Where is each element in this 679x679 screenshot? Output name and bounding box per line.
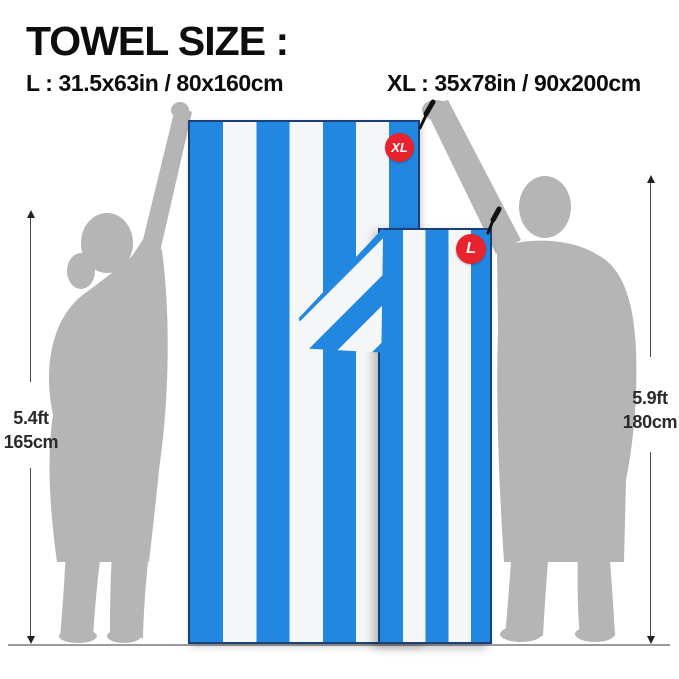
hang-loops-graphic (0, 0, 679, 679)
badge-xl: XL (385, 133, 414, 162)
arrow-down-icon (27, 636, 35, 644)
badge-l: L (456, 234, 486, 264)
towel-size-infographic: TOWEL SIZE : L : 31.5x63in / 80x160cm XL… (0, 0, 679, 679)
height-line-right-upper (650, 182, 651, 357)
height-line-left-lower (30, 468, 31, 642)
height-right-cm: 180cm (621, 410, 679, 434)
hang-loop-l-icon (488, 209, 499, 233)
height-label-right: 5.9ft 180cm (621, 386, 679, 434)
height-line-right-lower (650, 452, 651, 642)
hang-loop-xl-icon (420, 102, 433, 128)
height-left-cm: 165cm (1, 430, 61, 454)
height-right-ft: 5.9ft (621, 386, 679, 410)
arrow-up-icon (27, 210, 35, 218)
arrow-down-icon (647, 636, 655, 644)
height-line-left-upper (30, 217, 31, 382)
height-label-left: 5.4ft 165cm (1, 406, 61, 454)
height-left-ft: 5.4ft (1, 406, 61, 430)
arrow-up-icon (647, 175, 655, 183)
